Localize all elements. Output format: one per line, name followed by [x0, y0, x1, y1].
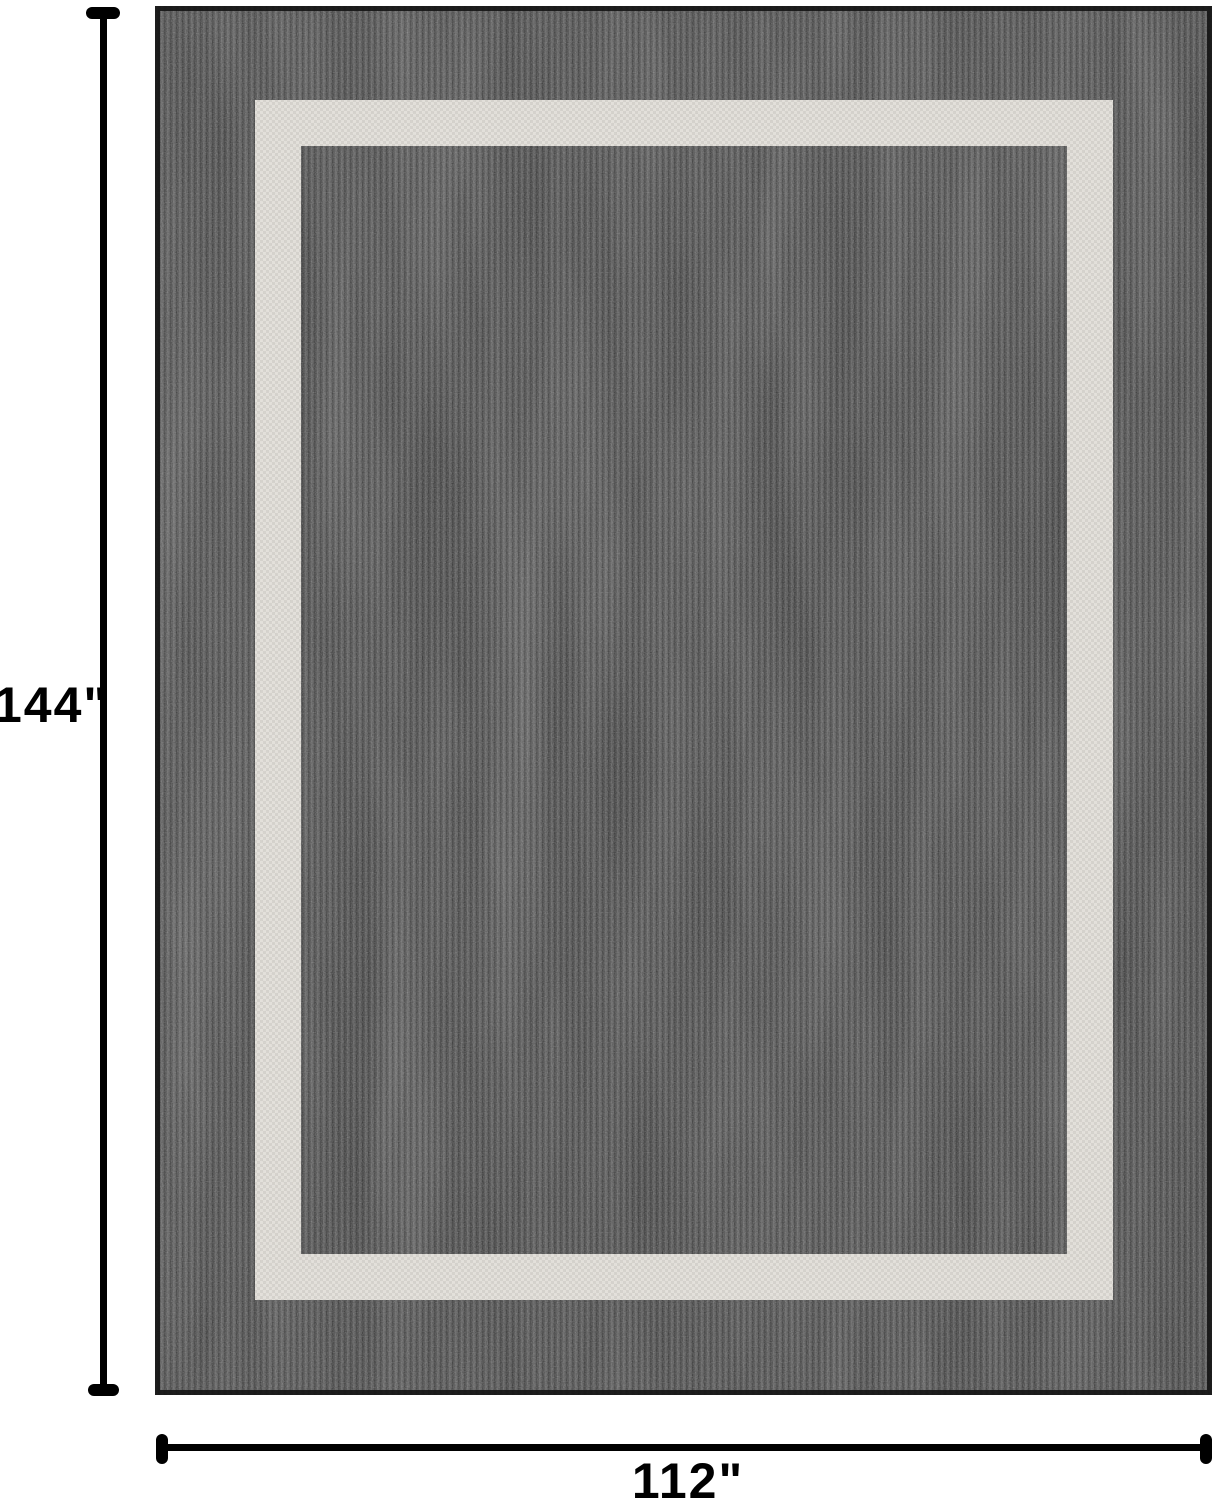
rug-image [155, 6, 1212, 1395]
width-dimension-end-right [1200, 1434, 1212, 1464]
width-dimension-line [160, 1444, 1208, 1451]
product-dimension-image: 144" 112" [0, 0, 1215, 1500]
height-dimension-end-top [86, 7, 120, 19]
height-label: 144" [0, 676, 96, 734]
width-dimension-end-left [156, 1434, 168, 1464]
rug-graphic [155, 6, 1212, 1395]
width-label: 112" [588, 1452, 788, 1510]
height-dimension-end-bottom [88, 1384, 119, 1396]
